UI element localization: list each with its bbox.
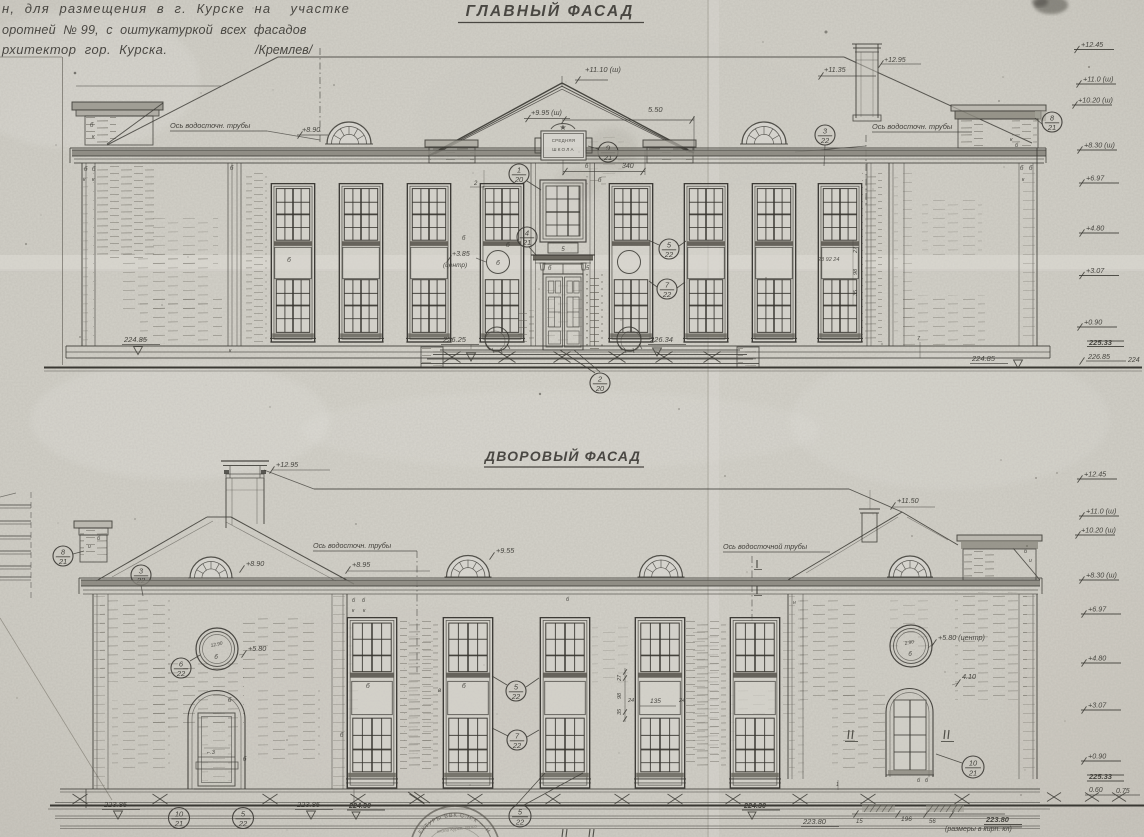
svg-text:135: 135 [650,698,661,705]
svg-text:+5.80 (центр): +5.80 (центр) [938,633,985,642]
svg-text:27: 27 [617,674,623,682]
svg-text:+8.90: +8.90 [302,125,320,134]
svg-text:27: 27 [853,246,859,254]
svg-text:+10.20 (ш): +10.20 (ш) [1078,96,1113,105]
svg-text:226.34: 226.34 [649,335,673,344]
svg-text:+3.85: +3.85 [452,251,470,258]
svg-text:21: 21 [968,769,977,778]
svg-text:0.60: 0.60 [1089,787,1103,794]
svg-text:22: 22 [662,290,672,299]
svg-text:224.30: 224.30 [743,801,766,810]
svg-text:+4.80: +4.80 [1086,224,1104,233]
svg-text:35: 35 [617,708,623,715]
svg-text:+9.55: +9.55 [496,546,515,555]
svg-text:22: 22 [238,819,248,828]
svg-text:2: 2 [473,181,478,187]
svg-text:(размеры в кирп. кл): (размеры в кирп. кл) [945,826,1012,833]
svg-text:21: 21 [174,819,183,828]
svg-text:20: 20 [514,175,524,184]
svg-text:15: 15 [856,819,863,825]
svg-text:56: 56 [929,819,936,825]
svg-text:0.75: 0.75 [1116,788,1130,795]
svg-text:224.85: 224.85 [123,335,148,344]
svg-text:Ось водосточн. трубы: Ось водосточн. трубы [313,541,392,550]
svg-text:б: б [287,256,291,264]
svg-text:+12.95: +12.95 [276,460,299,469]
svg-text:225.33: 225.33 [1088,772,1113,781]
svg-text:+3.07: +3.07 [1086,266,1105,275]
svg-text:226.25: 226.25 [442,335,467,344]
svg-text:21: 21 [58,557,67,566]
svg-text:20: 20 [595,384,605,393]
svg-text:22: 22 [511,692,521,701]
svg-text:340: 340 [622,163,634,170]
svg-text:+6.97: +6.97 [1086,174,1105,183]
svg-text:24: 24 [678,698,685,704]
svg-text:5.50: 5.50 [648,105,663,114]
svg-text:223.85: 223.85 [103,800,128,809]
svg-text:+4.80: +4.80 [1088,654,1106,663]
svg-text:224.85: 224.85 [971,354,996,363]
svg-text:и: и [88,544,91,550]
svg-text:224: 224 [1127,357,1140,364]
svg-text:б: б [506,241,510,249]
svg-text:б: б [366,682,370,690]
svg-text:22: 22 [820,136,830,145]
svg-text:+12.95: +12.95 [884,57,906,64]
svg-text:+6.97: +6.97 [1088,605,1107,614]
svg-text:+5.80: +5.80 [248,644,266,653]
svg-text:ДВОРОВЫЙ ФАСАД: ДВОРОВЫЙ ФАСАД [484,447,641,464]
svg-text:196: 196 [901,816,912,823]
svg-text:1: 1 [836,782,839,788]
svg-text:+3.07: +3.07 [1088,701,1107,710]
svg-text:+10.20 (ш): +10.20 (ш) [1081,526,1116,535]
svg-text:н, для размещения в г. Ку: н, для размещения в г. Курске на участке [2,1,350,16]
svg-text:ГЛАВНЫЙ ФАСАД: ГЛАВНЫЙ ФАСАД [466,2,635,20]
svg-text:35: 35 [853,289,859,296]
svg-text:10: 10 [175,809,184,818]
svg-text:22: 22 [664,250,674,259]
svg-text:10: 10 [969,758,978,767]
svg-text:+11.0 (ш): +11.0 (ш) [1083,75,1113,84]
svg-text:+12.45: +12.45 [1081,40,1104,49]
svg-text:2: 2 [597,374,603,383]
svg-text:СРЕДНЯЯ: СРЕДНЯЯ [552,138,576,143]
svg-text:+11.0 (ш): +11.0 (ш) [1086,507,1116,516]
svg-text:+8.30 (ш): +8.30 (ш) [1086,571,1117,580]
svg-text:Ось водосточн. трубы: Ось водосточн. трубы [872,122,953,131]
svg-text:21: 21 [1047,123,1056,132]
svg-text:и: и [1029,558,1032,564]
svg-text:24: 24 [627,698,634,704]
svg-text:223.85: 223.85 [296,800,321,809]
svg-text:223.80: 223.80 [985,815,1010,824]
svg-text:21: 21 [522,238,531,247]
svg-text:+8.95: +8.95 [352,560,371,569]
svg-text:б: б [462,682,466,690]
svg-text:+11.35: +11.35 [824,65,847,74]
svg-text:4: 4 [525,228,529,237]
svg-text:к: к [92,134,95,140]
svg-text:22: 22 [176,669,186,678]
svg-text:225.33: 225.33 [1088,338,1113,347]
svg-text:+0.90: +0.90 [1084,318,1102,327]
svg-text:к: к [1010,137,1013,143]
svg-text:4.10: 4.10 [962,672,976,681]
svg-text:98: 98 [853,268,859,275]
svg-text:+9.95 (ш): +9.95 (ш) [531,108,562,117]
svg-text:(центр): (центр) [443,262,467,269]
svg-text:+8.30 (ш): +8.30 (ш) [1084,141,1115,150]
svg-text:+8.90: +8.90 [246,559,264,568]
svg-text:/Кремлев/: /Кремлев/ [254,43,314,57]
svg-text:+11.50: +11.50 [897,496,919,505]
svg-text:в: в [438,688,441,694]
svg-text:Ось водосточной трубы: Ось водосточной трубы [723,542,808,551]
svg-text:23 92 24: 23 92 24 [817,257,839,263]
svg-text:223.80: 223.80 [802,817,827,826]
svg-text:22: 22 [515,818,525,827]
svg-text:рхитектор гор. Курска.: рхитектор гор. Курска. [1,42,168,57]
svg-text:226.85: 226.85 [1087,352,1111,361]
svg-text:+11.10 (ш): +11.10 (ш) [585,65,621,74]
svg-text:⌐.3: ⌐.3 [207,750,216,756]
svg-text:22: 22 [512,741,522,750]
svg-text:1: 1 [517,165,521,174]
svg-text:оротней № 99, с оштукатурко: оротней № 99, с оштукатуркой всех фасадо… [2,23,307,37]
svg-text:+0.90: +0.90 [1088,752,1106,761]
svg-text:Ось водосточн. трубы: Ось водосточн. трубы [170,121,251,130]
svg-text:+12.45: +12.45 [1084,470,1107,479]
svg-text:б: б [496,259,500,267]
svg-text:ШКОЛА: ШКОЛА [552,147,574,152]
svg-text:98: 98 [617,692,623,699]
svg-text:224.30: 224.30 [348,801,371,810]
